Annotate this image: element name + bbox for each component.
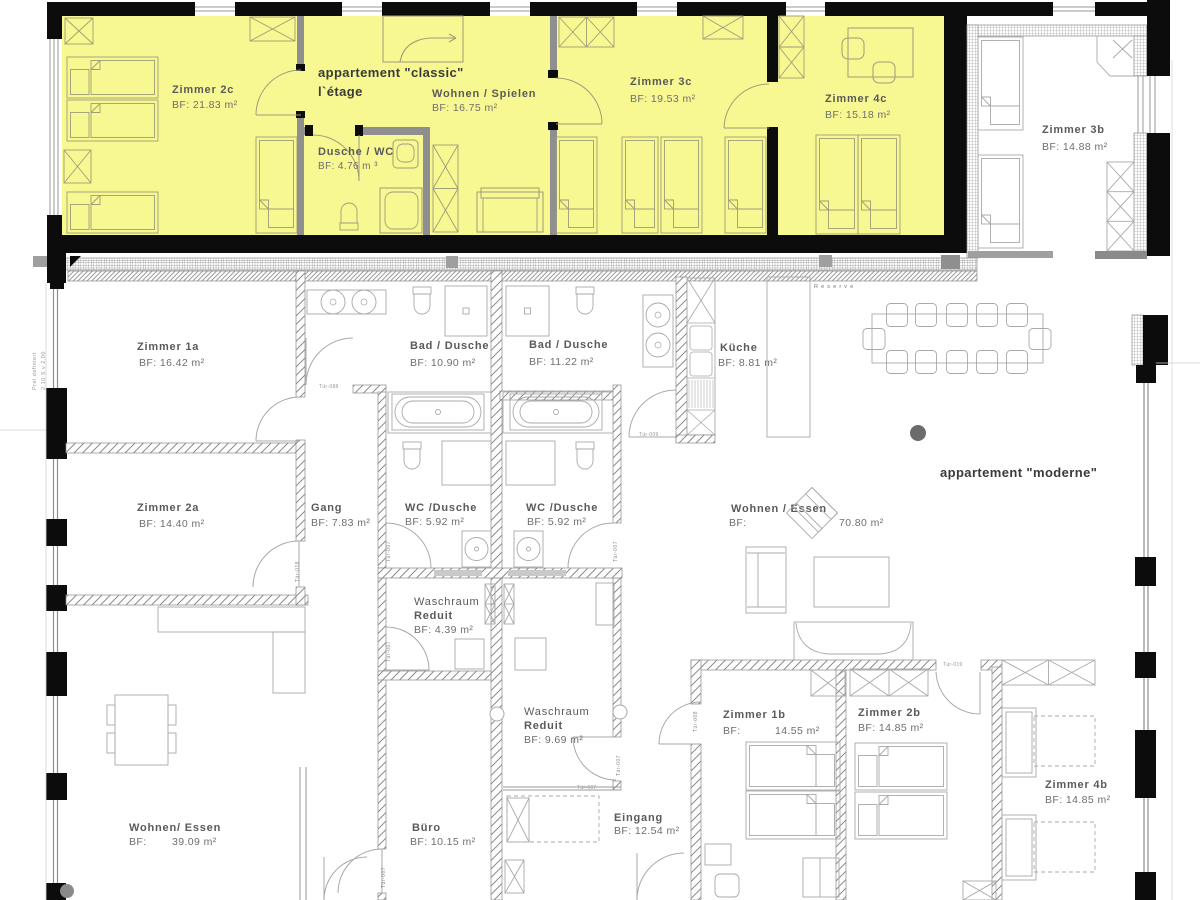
svg-text:BF: 10.15 m²: BF: 10.15 m² bbox=[410, 836, 476, 848]
svg-text:Büro: Büro bbox=[412, 822, 441, 834]
svg-text:Waschraum: Waschraum bbox=[414, 596, 479, 608]
svg-text:Zimmer 2c: Zimmer 2c bbox=[172, 84, 234, 96]
svg-text:BF: 14.40 m²: BF: 14.40 m² bbox=[139, 518, 205, 530]
svg-text:BF: 12.54 m²: BF: 12.54 m² bbox=[614, 825, 680, 837]
svg-text:Bad / Dusche: Bad / Dusche bbox=[410, 340, 489, 352]
svg-text:BF: 9.69 m²: BF: 9.69 m² bbox=[524, 734, 583, 746]
svg-text:BF: 4.39 m²: BF: 4.39 m² bbox=[414, 624, 473, 636]
svg-text:BF: 11.22 m²: BF: 11.22 m² bbox=[529, 356, 594, 368]
svg-text:Tür-007: Tür-007 bbox=[613, 541, 619, 562]
svg-text:Wohnen / Essen: Wohnen / Essen bbox=[731, 503, 827, 515]
svg-text:BF: 5.92 m²: BF: 5.92 m² bbox=[405, 516, 464, 528]
svg-text:Prei definiert: Prei definiert bbox=[32, 352, 38, 390]
svg-text:Zimmer 1b: Zimmer 1b bbox=[723, 709, 786, 721]
svg-text:Tür-088: Tür-088 bbox=[319, 384, 339, 390]
svg-text:BF: 14.85 m²: BF: 14.85 m² bbox=[858, 722, 924, 734]
svg-text:Tür-019: Tür-019 bbox=[943, 662, 963, 668]
svg-text:Waschraum: Waschraum bbox=[524, 706, 589, 718]
svg-text:R e s e r v e: R e s e r v e bbox=[814, 284, 854, 290]
svg-text:BF:: BF: bbox=[129, 836, 147, 848]
svg-text:14.55 m²: 14.55 m² bbox=[775, 725, 820, 737]
svg-text:BF: 21.83 m²: BF: 21.83 m² bbox=[172, 99, 238, 111]
svg-text:Bad / Dusche: Bad / Dusche bbox=[529, 339, 608, 351]
svg-text:BF: 5.92 m²: BF: 5.92 m² bbox=[527, 516, 586, 528]
svg-text:2.10 S v 2.00: 2.10 S v 2.00 bbox=[41, 351, 47, 390]
svg-text:Zimmer 3b: Zimmer 3b bbox=[1042, 124, 1105, 136]
svg-text:Gang: Gang bbox=[311, 502, 342, 514]
svg-text:BF: 19.53 m²: BF: 19.53 m² bbox=[630, 93, 696, 105]
svg-text:Zimmer 1a: Zimmer 1a bbox=[137, 341, 199, 353]
svg-text:Tür-007: Tür-007 bbox=[616, 755, 622, 776]
svg-text:BF: 16.75 m²: BF: 16.75 m² bbox=[432, 102, 498, 114]
svg-text:Tür-007: Tür-007 bbox=[577, 785, 597, 791]
svg-text:WC /Dusche: WC /Dusche bbox=[526, 502, 598, 514]
svg-text:Dusche / WC: Dusche / WC bbox=[318, 146, 394, 158]
svg-text:Tür-007: Tür-007 bbox=[381, 867, 387, 888]
svg-text:Wohnen / Spielen: Wohnen / Spielen bbox=[432, 88, 536, 100]
svg-text:appartement "moderne": appartement "moderne" bbox=[940, 465, 1097, 480]
svg-text:Tür-008: Tür-008 bbox=[693, 711, 699, 732]
svg-text:Reduit: Reduit bbox=[414, 610, 453, 622]
svg-text:BF: 15.18 m²: BF: 15.18 m² bbox=[825, 109, 891, 121]
svg-text:WC /Dusche: WC /Dusche bbox=[405, 502, 477, 514]
svg-text:Zimmer 4b: Zimmer 4b bbox=[1045, 779, 1108, 791]
svg-text:Tür-009: Tür-009 bbox=[639, 432, 659, 438]
svg-text:BF: 4.76 m ³: BF: 4.76 m ³ bbox=[318, 161, 378, 172]
svg-text:Zimmer 4c: Zimmer 4c bbox=[825, 93, 887, 105]
svg-text:Zimmer 2a: Zimmer 2a bbox=[137, 502, 199, 514]
svg-text:BF:: BF: bbox=[729, 517, 747, 529]
svg-text:Wohnen/ Essen: Wohnen/ Essen bbox=[129, 822, 221, 834]
svg-text:Reduit: Reduit bbox=[524, 720, 563, 732]
svg-text:39.09 m²: 39.09 m² bbox=[172, 836, 217, 848]
svg-text:BF:: BF: bbox=[723, 725, 741, 737]
svg-text:appartement "classic": appartement "classic" bbox=[318, 65, 464, 80]
svg-text:Tür-018: Tür-018 bbox=[295, 561, 301, 582]
svg-text:70.80 m²: 70.80 m² bbox=[839, 517, 884, 529]
svg-text:Tür-007: Tür-007 bbox=[386, 641, 392, 662]
svg-text:BF: 16.42 m²: BF: 16.42 m² bbox=[139, 357, 205, 369]
svg-text:Küche: Küche bbox=[720, 342, 758, 354]
svg-text:l`étage: l`étage bbox=[318, 84, 363, 99]
svg-text:BF: 7.83 m²: BF: 7.83 m² bbox=[311, 517, 370, 529]
svg-text:Eingang: Eingang bbox=[614, 812, 663, 824]
svg-text:BF: 10.90 m²: BF: 10.90 m² bbox=[410, 357, 476, 369]
svg-text:BF: 14.88 m²: BF: 14.88 m² bbox=[1042, 141, 1108, 153]
svg-text:Tür-007: Tür-007 bbox=[386, 541, 392, 562]
svg-text:Zimmer 2b: Zimmer 2b bbox=[858, 707, 921, 719]
svg-text:BF: 14.85 m²: BF: 14.85 m² bbox=[1045, 794, 1111, 806]
svg-text:BF: 8.81 m²: BF: 8.81 m² bbox=[718, 357, 777, 369]
svg-text:Zimmer 3c: Zimmer 3c bbox=[630, 76, 692, 88]
